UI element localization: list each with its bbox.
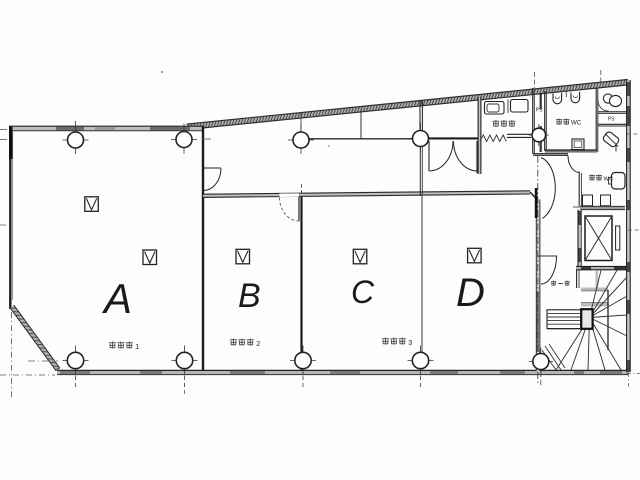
svg-text:PS: PS — [608, 117, 615, 123]
svg-text:D: D — [456, 271, 485, 315]
svg-text:2: 2 — [256, 341, 260, 348]
svg-text:A: A — [101, 275, 132, 322]
svg-text:PS: PS — [536, 108, 543, 114]
svg-text:C: C — [351, 274, 375, 310]
svg-text:WC: WC — [571, 120, 582, 127]
svg-text:1: 1 — [135, 344, 139, 351]
svg-text:3: 3 — [408, 340, 412, 347]
svg-text:B: B — [238, 277, 261, 315]
